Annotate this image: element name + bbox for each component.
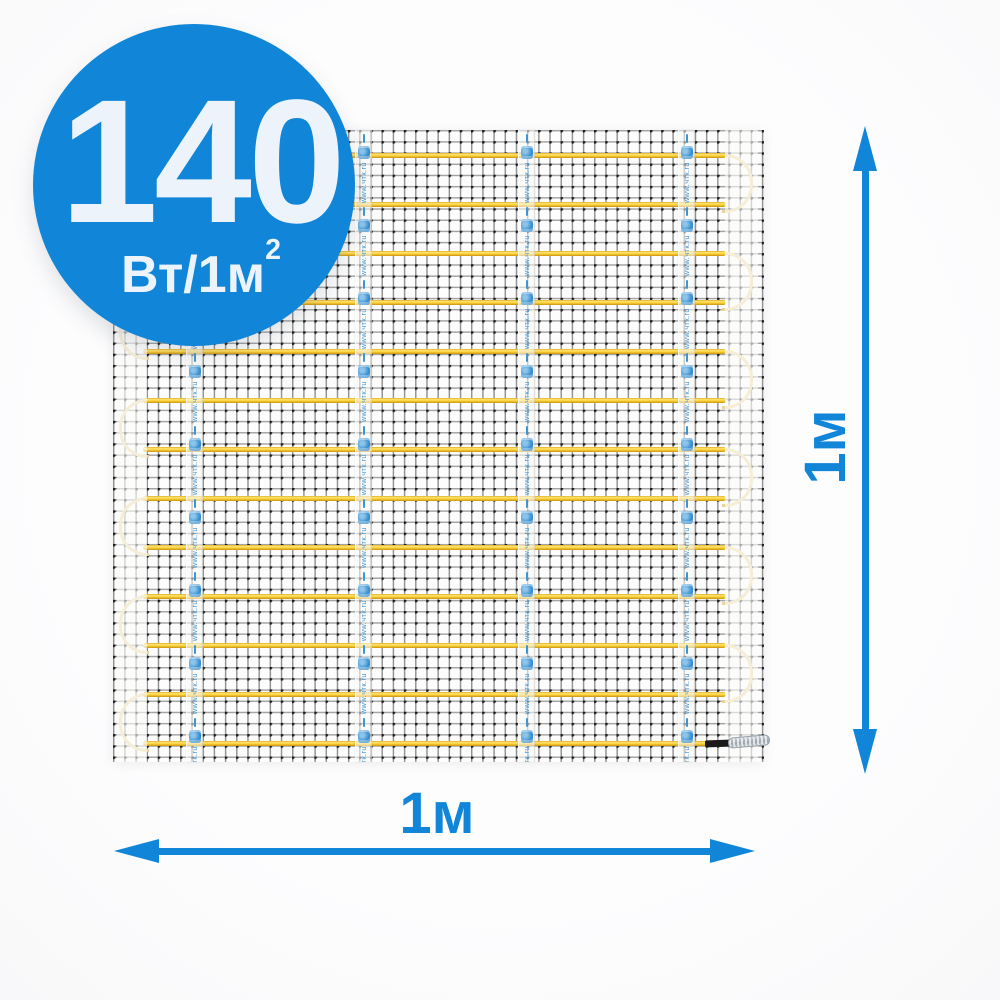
width-dimension-label: 1м: [337, 785, 537, 843]
tape-print-segment: www.чтк.ru: [355, 349, 372, 422]
tape-dash-icon: [686, 499, 688, 508]
cable-row: [143, 545, 726, 550]
height-dimension-label: 1м: [796, 347, 856, 547]
mat-right-edge: [725, 130, 758, 762]
tape-url-text: www.чтк.ru: [683, 235, 691, 276]
tape-url-text: www.чтк.ru: [523, 308, 531, 349]
brand-logo-icon: [358, 219, 370, 232]
tape-print-segment: www.чтк.ru: [355, 495, 372, 568]
fixing-tape: www.чтк.ruwww.чтк.ruwww.чтк.ruwww.чтк.ru…: [678, 130, 695, 762]
brand-logo-icon: [189, 365, 201, 378]
tape-dash-icon: [363, 572, 365, 581]
brand-logo-icon: [681, 438, 693, 451]
tape-url-text: www.чтк.ru: [683, 454, 691, 495]
brand-logo-icon: [189, 730, 201, 743]
tape-dash-icon: [526, 645, 528, 654]
brand-logo-icon: [681, 146, 693, 159]
tape-print-segment: www.чтк.ru: [518, 349, 535, 422]
tape-url-text: www.чтк.ru: [523, 381, 531, 422]
power-value: 140: [33, 74, 355, 250]
tape-url-text: www.чтк.ru: [360, 235, 368, 276]
tape-url-text: www.чтк.ru: [683, 162, 691, 203]
cable-row: [143, 741, 708, 746]
arrowhead-left-icon: [114, 839, 159, 863]
tape-dash-icon: [686, 426, 688, 435]
brand-logo-icon: [189, 438, 201, 451]
brand-logo-icon: [681, 657, 693, 670]
brand-logo-icon: [521, 657, 533, 670]
tape-url-text: www.чтк.ru: [683, 308, 691, 349]
tape-print-segment: www.чтк.ru: [678, 714, 695, 762]
tape-dash-icon: [686, 353, 688, 362]
tape-print-segment: www.чтк.ru: [355, 130, 372, 203]
tape-print-segment: www.чтк.ru: [518, 641, 535, 714]
brand-logo-icon: [521, 365, 533, 378]
tape-dash-icon: [194, 572, 196, 581]
tape-url-text: www.чтк.ru: [360, 308, 368, 349]
tape-url-text: www.чтк.ru: [523, 235, 531, 276]
tape-dash-icon: [526, 280, 528, 289]
tape-dash-icon: [686, 134, 688, 143]
brand-logo-icon: [521, 730, 533, 743]
tape-dash-icon: [363, 280, 365, 289]
tape-print-segment: www.чтк.ru: [186, 495, 203, 568]
brand-logo-icon: [521, 219, 533, 232]
tape-dash-icon: [686, 718, 688, 727]
tape-print-segment: www.чтк.ru: [678, 422, 695, 495]
tape-dash-icon: [363, 426, 365, 435]
tape-dash-icon: [194, 426, 196, 435]
power-unit: Вт/1м2: [33, 249, 355, 301]
arrowhead-down-icon: [853, 729, 877, 774]
tape-print-segment: www.чтк.ru: [186, 349, 203, 422]
tape-url-text: www.чтк.ru: [523, 673, 531, 714]
tape-print-segment: www.чтк.ru: [678, 495, 695, 568]
tape-dash-icon: [363, 353, 365, 362]
tape-print-segment: www.чтк.ru: [518, 422, 535, 495]
tape-print-segment: www.чтк.ru: [186, 714, 203, 762]
arrowhead-right-icon: [710, 839, 755, 863]
tape-dash-icon: [363, 718, 365, 727]
tape-url-text: www.чтк.ru: [360, 600, 368, 641]
brand-logo-icon: [358, 511, 370, 524]
cable-row: [143, 398, 726, 403]
brand-logo-icon: [681, 292, 693, 305]
tape-print-segment: www.чтк.ru: [518, 203, 535, 276]
tape-url-text: www.чтк.ru: [191, 454, 199, 495]
tape-dash-icon: [194, 499, 196, 508]
tape-dash-icon: [526, 718, 528, 727]
brand-logo-icon: [681, 584, 693, 597]
tape-print-segment: www.чтк.ru: [355, 276, 372, 349]
tape-dash-icon: [686, 572, 688, 581]
cable-row: [143, 496, 726, 501]
tape-print-segment: www.чтк.ru: [518, 568, 535, 641]
brand-logo-icon: [681, 219, 693, 232]
brand-logo-icon: [358, 730, 370, 743]
tape-url-text: www.чтк.ru: [191, 381, 199, 422]
brand-logo-icon: [189, 511, 201, 524]
tape-dash-icon: [194, 353, 196, 362]
brand-logo-icon: [521, 146, 533, 159]
tape-dash-icon: [526, 572, 528, 581]
tape-dash-icon: [686, 645, 688, 654]
brand-logo-icon: [521, 438, 533, 451]
tape-print-segment: www.чтк.ru: [355, 641, 372, 714]
tape-print-segment: www.чтк.ru: [678, 349, 695, 422]
tape-print-segment: www.чтк.ru: [186, 641, 203, 714]
tape-url-text: www.чтк.ru: [360, 454, 368, 495]
tape-dash-icon: [686, 280, 688, 289]
tape-url-text: www.чтк.ru: [191, 600, 199, 641]
tape-print-segment: www.чтк.ru: [186, 422, 203, 495]
tape-dash-icon: [526, 426, 528, 435]
tape-dash-icon: [363, 134, 365, 143]
tape-url-text: www.чтк.ru: [191, 673, 199, 714]
tape-dash-icon: [194, 645, 196, 654]
cable-row: [143, 594, 726, 599]
tape-print-segment: www.чтк.ru: [355, 203, 372, 276]
tape-dash-icon: [363, 645, 365, 654]
brand-logo-icon: [681, 365, 693, 378]
tape-url-text: www.чтк.ru: [360, 162, 368, 203]
fixing-tape: www.чтк.ruwww.чтк.ruwww.чтк.ruwww.чтк.ru…: [355, 130, 372, 762]
brand-logo-icon: [358, 292, 370, 305]
tape-url-text: www.чтк.ru: [523, 527, 531, 568]
product-image: www.чтк.ruwww.чтк.ruwww.чтк.ruwww.чтк.ru…: [0, 0, 1000, 1000]
tape-dash-icon: [526, 499, 528, 508]
tape-url-text: www.чтк.ru: [523, 746, 531, 762]
brand-logo-icon: [358, 438, 370, 451]
tape-dash-icon: [686, 207, 688, 216]
tape-print-segment: www.чтк.ru: [355, 422, 372, 495]
brand-logo-icon: [358, 365, 370, 378]
tape-print-segment: www.чтк.ru: [518, 130, 535, 203]
tape-dash-icon: [363, 499, 365, 508]
tape-url-text: www.чтк.ru: [523, 162, 531, 203]
tape-url-text: www.чтк.ru: [360, 673, 368, 714]
cable-row: [143, 447, 726, 452]
tape-dash-icon: [194, 718, 196, 727]
brand-logo-icon: [189, 657, 201, 670]
tape-url-text: www.чтк.ru: [523, 600, 531, 641]
tape-print-segment: www.чтк.ru: [355, 568, 372, 641]
cable-row: [143, 692, 726, 697]
tape-url-text: www.чтк.ru: [360, 527, 368, 568]
arrowhead-up-icon: [853, 126, 877, 171]
tape-url-text: www.чтк.ru: [523, 454, 531, 495]
tape-print-segment: www.чтк.ru: [678, 568, 695, 641]
tape-print-segment: www.чтк.ru: [678, 130, 695, 203]
width-arrow-line: [152, 848, 717, 855]
tape-url-text: www.чтк.ru: [360, 381, 368, 422]
tape-print-segment: www.чтк.ru: [355, 714, 372, 762]
power-unit-superscript: 2: [265, 234, 281, 266]
tape-url-text: www.чтк.ru: [360, 746, 368, 762]
tape-url-text: www.чтк.ru: [683, 600, 691, 641]
brand-logo-icon: [521, 292, 533, 305]
tape-print-segment: www.чтк.ru: [518, 276, 535, 349]
brand-logo-icon: [681, 511, 693, 524]
power-badge: 140 Вт/1м2: [33, 24, 355, 346]
brand-logo-icon: [358, 657, 370, 670]
tape-url-text: www.чтк.ru: [683, 381, 691, 422]
tape-print-segment: www.чтк.ru: [518, 714, 535, 762]
power-unit-text: Вт/1м: [121, 246, 265, 304]
tape-print-segment: www.чтк.ru: [678, 641, 695, 714]
tape-url-text: www.чтк.ru: [683, 746, 691, 762]
tape-dash-icon: [526, 134, 528, 143]
tape-url-text: www.чтк.ru: [191, 746, 199, 762]
tape-dash-icon: [526, 353, 528, 362]
cable-row: [143, 643, 726, 648]
brand-logo-icon: [681, 730, 693, 743]
brand-logo-icon: [521, 511, 533, 524]
height-arrow-line: [862, 164, 869, 736]
tape-print-segment: www.чтк.ru: [678, 203, 695, 276]
brand-logo-icon: [521, 584, 533, 597]
tape-url-text: www.чтк.ru: [683, 527, 691, 568]
tape-url-text: www.чтк.ru: [191, 527, 199, 568]
tape-print-segment: www.чтк.ru: [678, 276, 695, 349]
brand-logo-icon: [358, 584, 370, 597]
brand-logo-icon: [358, 146, 370, 159]
brand-logo-icon: [189, 584, 201, 597]
tape-dash-icon: [363, 207, 365, 216]
tape-url-text: www.чтк.ru: [683, 673, 691, 714]
tape-print-segment: www.чтк.ru: [186, 568, 203, 641]
cable-row: [143, 349, 726, 354]
tape-dash-icon: [526, 207, 528, 216]
fixing-tape: www.чтк.ruwww.чтк.ruwww.чтк.ruwww.чтк.ru…: [518, 130, 535, 762]
tape-print-segment: www.чтк.ru: [518, 495, 535, 568]
